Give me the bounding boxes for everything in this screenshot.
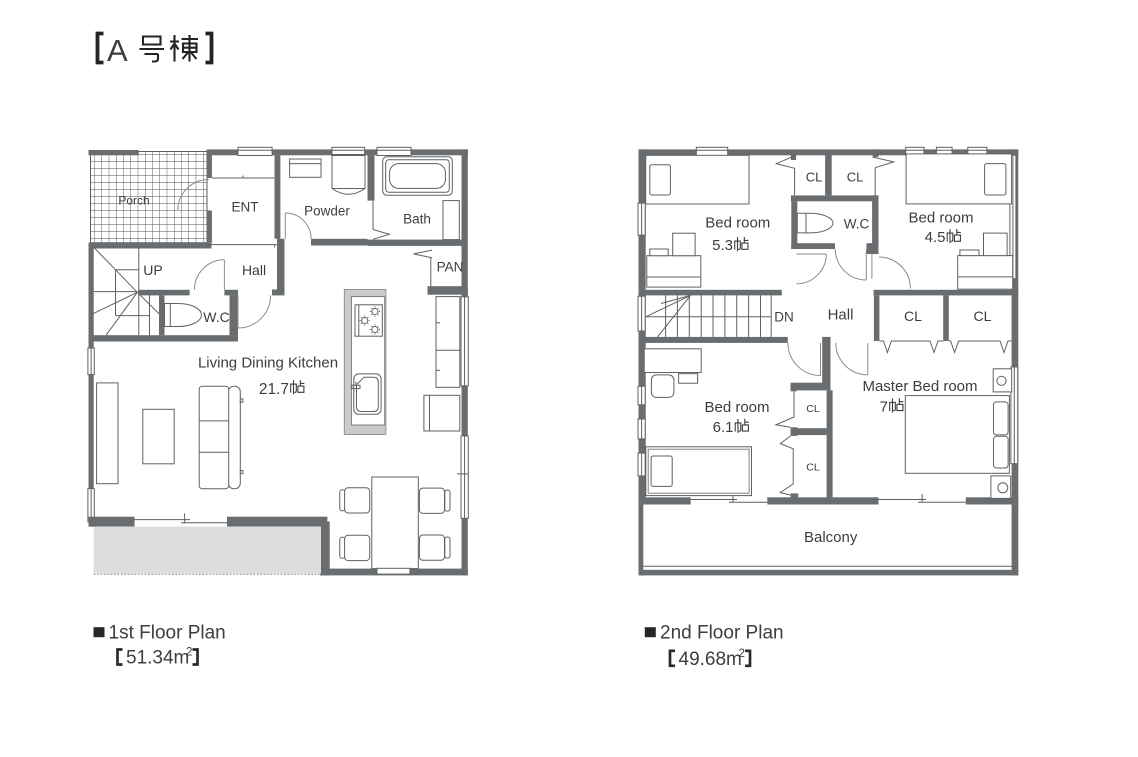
svg-text:CL: CL [806,403,820,415]
svg-text:CL: CL [904,308,922,324]
svg-text:W.C: W.C [203,309,229,325]
svg-text:Master Bed room: Master Bed room [862,378,977,395]
svg-text:6.1: 6.1 [713,419,734,436]
svg-text:CL: CL [974,308,992,324]
svg-text:Powder: Powder [304,204,350,219]
svg-text:5.3: 5.3 [712,237,733,254]
svg-text:DN: DN [774,310,794,325]
svg-text:2: 2 [739,648,745,660]
svg-text:Hall: Hall [242,262,266,278]
svg-text:W.C: W.C [844,217,870,232]
svg-text:A: A [107,33,128,68]
svg-text:51.34m: 51.34m [126,648,189,669]
svg-text:21.7: 21.7 [259,381,289,398]
svg-text:CL: CL [806,170,823,185]
svg-text:CL: CL [806,462,820,474]
svg-text:Living Dining Kitchen: Living Dining Kitchen [198,355,338,372]
svg-text:1st Floor Plan: 1st Floor Plan [109,623,226,644]
svg-text:UP: UP [143,262,162,278]
svg-text:Bed room: Bed room [704,399,769,416]
svg-text:4.5: 4.5 [925,229,946,246]
svg-text:Balcony: Balcony [804,529,858,546]
svg-text:2nd Floor Plan: 2nd Floor Plan [660,623,784,644]
svg-text:Bed room: Bed room [908,210,973,227]
svg-text:Bath: Bath [403,212,431,227]
svg-text:ENT: ENT [232,200,259,215]
svg-text:PAN: PAN [437,260,464,275]
svg-text:Hall: Hall [828,307,854,324]
svg-text:49.68m: 49.68m [679,649,742,670]
svg-text:Porch: Porch [118,194,149,208]
svg-text:Bed room: Bed room [705,215,770,232]
svg-text:7: 7 [880,399,888,416]
svg-text:CL: CL [847,170,864,185]
svg-text:2: 2 [186,647,192,659]
